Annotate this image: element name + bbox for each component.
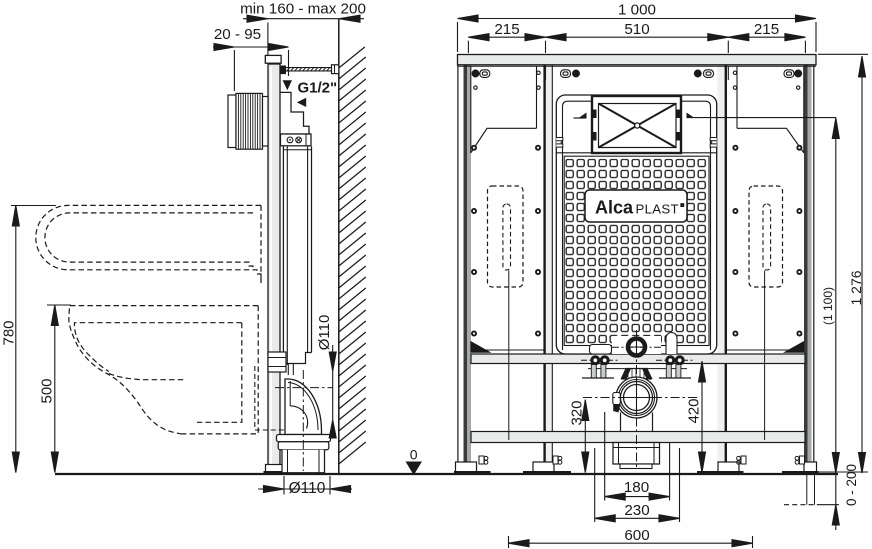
svg-text:G1/2": G1/2" <box>298 80 338 97</box>
svg-text:215: 215 <box>754 21 779 38</box>
svg-text:600: 600 <box>624 527 649 544</box>
svg-text:215: 215 <box>494 21 519 38</box>
svg-text:780: 780 <box>1 320 18 345</box>
svg-text:1 000: 1 000 <box>618 2 656 19</box>
svg-text:0: 0 <box>410 447 418 463</box>
svg-text:320: 320 <box>569 400 586 425</box>
svg-text:20 - 95: 20 - 95 <box>214 26 261 43</box>
svg-text:Ø110: Ø110 <box>316 315 333 351</box>
svg-text:Ø110: Ø110 <box>289 480 326 497</box>
svg-text:180: 180 <box>624 479 649 496</box>
svg-text:420: 420 <box>686 398 703 423</box>
svg-text:1 276: 1 276 <box>848 270 864 305</box>
svg-text:min 160 - max 200: min 160 - max 200 <box>240 1 366 18</box>
svg-text:(1 100): (1 100) <box>821 287 835 325</box>
svg-text:500: 500 <box>39 378 56 403</box>
svg-text:510: 510 <box>624 21 649 38</box>
svg-text:230: 230 <box>624 502 649 519</box>
svg-text:0 - 200: 0 - 200 <box>844 464 859 506</box>
